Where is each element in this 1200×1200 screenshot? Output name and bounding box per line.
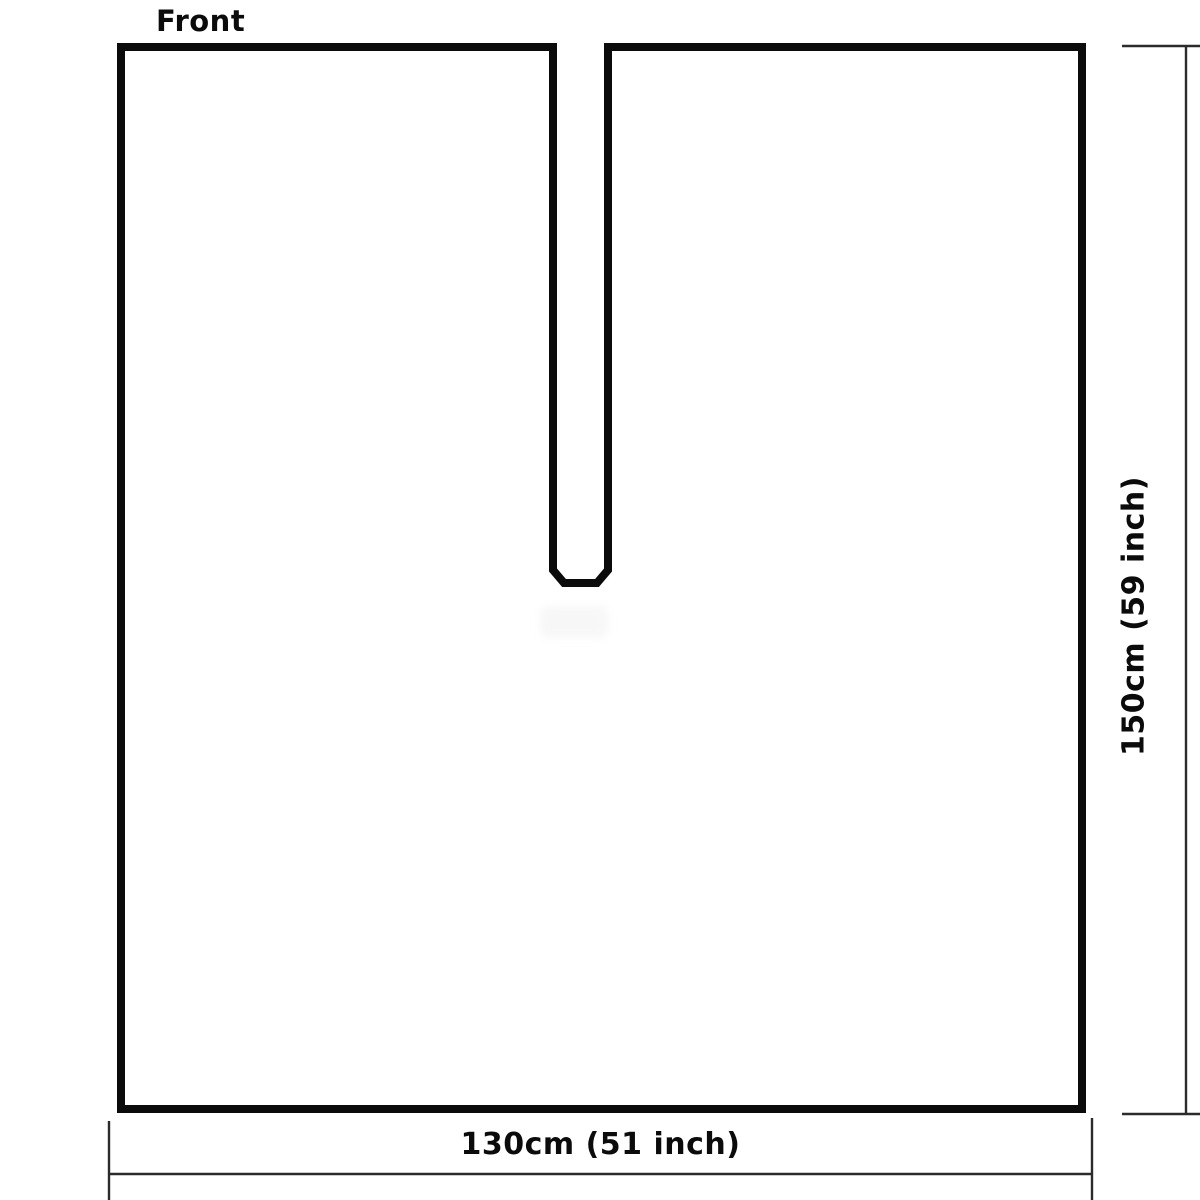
- faint-watermark-smudge: [540, 606, 608, 638]
- garment-outline-svg: [0, 0, 1200, 1200]
- height-dimension-label: 150cm (59 inch): [1117, 476, 1152, 756]
- width-dimension-label: 130cm (51 inch): [109, 1127, 1092, 1162]
- garment-outline-path: [121, 47, 1082, 1109]
- garment-pattern-diagram: Front 130cm (51 inch) 150cm (59 inch): [0, 0, 1200, 1200]
